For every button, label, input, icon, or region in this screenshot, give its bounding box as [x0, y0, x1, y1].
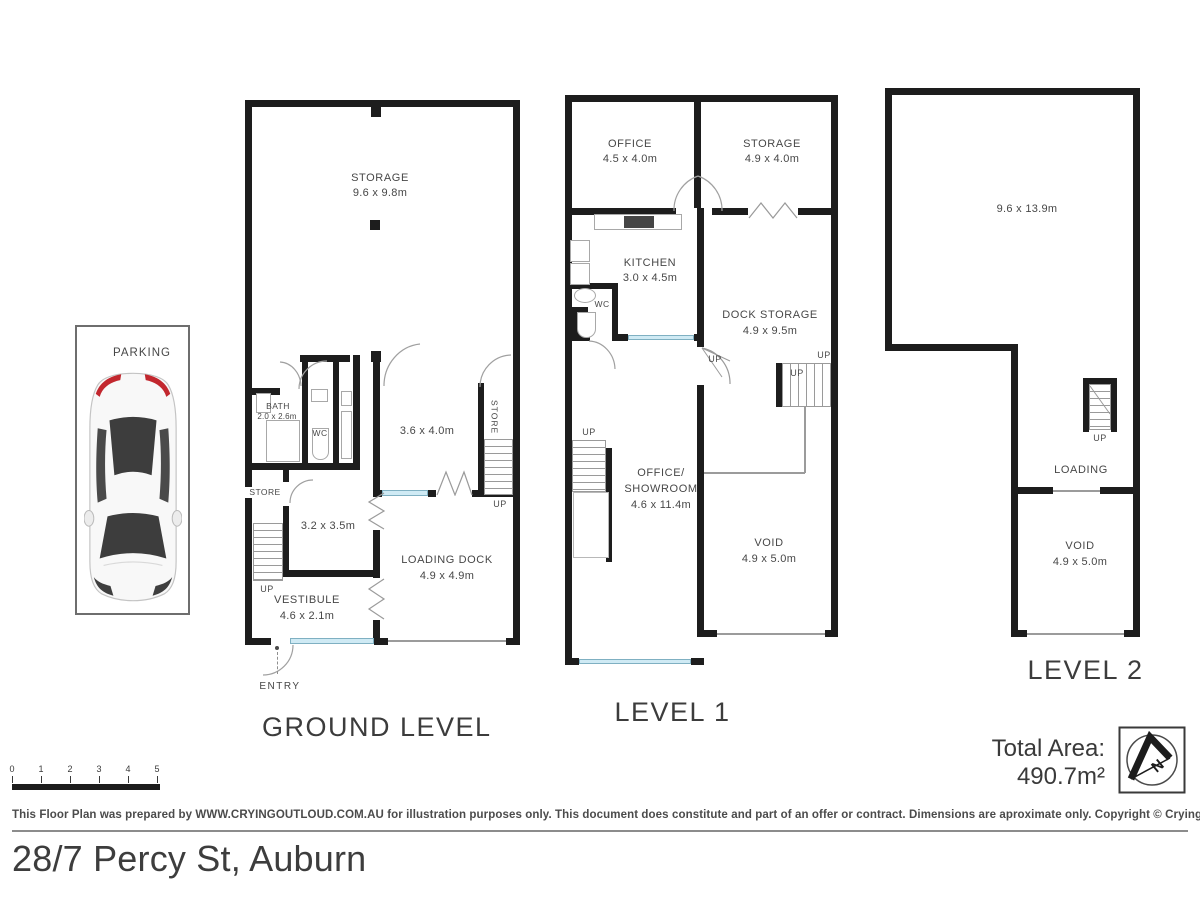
wall-segment: [353, 355, 360, 470]
entry-label: ENTRY: [254, 681, 306, 694]
wall-segment: [333, 355, 339, 470]
room-label: VOID: [1030, 540, 1130, 554]
shower-fixture: [266, 420, 300, 462]
room-label: VESTIBULE: [257, 594, 357, 608]
room-label: LOADING DOCK: [387, 554, 507, 568]
room-label: STORAGE: [320, 172, 440, 186]
room-label: WC: [588, 299, 616, 310]
up-label: UP: [576, 427, 602, 438]
room-label: BATH: [250, 401, 306, 412]
door-arc: [289, 479, 314, 504]
wall-segment: [831, 95, 838, 637]
wall-segment: [615, 334, 628, 341]
scale-tick-label: 0: [7, 764, 17, 774]
scale-tick: [128, 776, 129, 783]
wall-segment: [252, 463, 360, 470]
bifold-door: [436, 470, 473, 496]
wall-segment: [885, 88, 1140, 95]
entry-path-line: [277, 652, 278, 674]
room-label: OFFICE: [580, 138, 680, 152]
scale-bar: [12, 784, 160, 790]
wall-segment: [428, 490, 436, 497]
column: [371, 351, 381, 362]
fixture: [341, 391, 352, 406]
stairs: [253, 523, 283, 581]
up-label: UP: [812, 350, 836, 361]
scale-tick: [41, 776, 42, 783]
room-label: SHOWROOM: [611, 483, 711, 497]
wall-segment: [373, 362, 380, 490]
fixture: [570, 263, 590, 285]
total-area-text: Total Area: 490.7m²: [905, 735, 1105, 791]
room-dims: 4.9 x 5.0m: [1030, 556, 1130, 570]
entry-dot: [275, 646, 279, 650]
opening-line: [388, 640, 506, 642]
door-arc: [279, 361, 302, 387]
room-dims: 4.9 x 4.0m: [722, 153, 822, 167]
room-dims: 2.0 x 2.6m: [244, 412, 310, 422]
door-arc: [383, 343, 421, 387]
bifold-door: [748, 201, 798, 220]
door-arc: [588, 340, 616, 370]
door-arc: [298, 360, 328, 390]
wall-segment: [885, 88, 892, 351]
stairs: [484, 439, 513, 495]
room-label: KITCHEN: [600, 257, 700, 271]
wall-segment: [694, 334, 704, 341]
opening-line: [1053, 490, 1100, 492]
wall-segment: [704, 630, 717, 637]
wall-segment: [1133, 88, 1140, 637]
fixture: [570, 240, 590, 262]
double-door-arc: [672, 174, 724, 212]
wall-segment: [825, 630, 838, 637]
room-dims: 4.9 x 9.5m: [705, 325, 835, 339]
scale-tick: [70, 776, 71, 783]
wall-segment: [885, 344, 1018, 351]
toilet-fixture: [577, 312, 596, 338]
level1-title: LEVEL 1: [600, 697, 745, 728]
void-edge-line: [804, 407, 806, 473]
scale-tick-label: 1: [36, 764, 46, 774]
winder-stair: [700, 347, 732, 385]
window: [579, 659, 691, 664]
room-dims: 9.6 x 13.9m: [967, 203, 1087, 217]
room-label: VOID: [719, 537, 819, 551]
window: [290, 638, 374, 644]
wall-segment: [1124, 630, 1140, 637]
scale-tick-label: 4: [123, 764, 133, 774]
wall-segment: [1111, 378, 1117, 432]
scale-tick: [12, 776, 13, 783]
wall-segment: [283, 506, 289, 577]
column: [371, 107, 381, 117]
room-dims: 9.6 x 9.8m: [320, 187, 440, 201]
stair-diagonal: [1089, 384, 1111, 430]
opening-line: [1027, 633, 1125, 635]
void-edge-line: [704, 472, 805, 474]
property-address: 28/7 Percy St, Auburn: [12, 838, 366, 880]
wall-segment: [245, 100, 252, 645]
room-dims: 4.6 x 2.1m: [257, 610, 357, 624]
wall-segment: [513, 100, 520, 645]
up-label: UP: [702, 354, 728, 365]
scale-tick-label: 2: [65, 764, 75, 774]
window: [382, 490, 428, 496]
disclaimer-text: This Floor Plan was prepared by WWW.CRYI…: [12, 809, 1188, 821]
room-label: STORE: [243, 487, 287, 498]
scale-tick: [157, 776, 158, 783]
room-label: STORE: [489, 392, 500, 442]
room-dims: 3.0 x 4.5m: [600, 272, 700, 286]
wall-segment: [565, 658, 579, 665]
room-dims: 4.9 x 4.9m: [387, 570, 507, 584]
bifold-door: [367, 578, 386, 620]
room-label: WC: [305, 428, 335, 439]
room-label: STORAGE: [722, 138, 822, 152]
wall-segment: [373, 620, 380, 638]
room-label: OFFICE/: [611, 467, 711, 481]
stairs: [572, 440, 606, 492]
wall-segment: [283, 570, 379, 577]
up-label: UP: [486, 499, 514, 510]
opening-line: [717, 633, 825, 635]
room-dims: 4.6 x 11.4m: [611, 499, 711, 513]
parking-label: PARKING: [92, 346, 192, 360]
wall-segment: [1011, 487, 1053, 494]
floorplan-canvas: PARKING: [0, 0, 1200, 900]
stove-fixture: [624, 216, 654, 228]
up-label: UP: [785, 368, 809, 379]
bifold-door: [367, 492, 386, 530]
wall-segment: [612, 283, 618, 341]
room-label: LOADING: [1031, 464, 1131, 478]
wall-segment: [798, 208, 838, 215]
fixture: [341, 411, 352, 459]
room-dims: 4.9 x 5.0m: [719, 553, 819, 567]
scale-tick-label: 5: [152, 764, 162, 774]
wall-segment: [245, 100, 520, 107]
wall-segment: [1100, 487, 1140, 494]
wall-segment: [1011, 630, 1027, 637]
door-arc: [479, 354, 512, 388]
wall-segment: [565, 95, 572, 665]
scale-tick: [99, 776, 100, 783]
scale-tick-label: 3: [94, 764, 104, 774]
wall-segment: [565, 95, 838, 102]
footer-divider: [12, 830, 1188, 832]
car-top-view: [84, 366, 182, 608]
level2-title: LEVEL 2: [1018, 655, 1153, 686]
sink-fixture: [311, 389, 328, 402]
stair-landing-outline: [573, 492, 609, 558]
up-label: UP: [1086, 433, 1114, 444]
wall-segment: [691, 658, 704, 665]
room-dims: 3.6 x 4.0m: [387, 425, 467, 439]
room-dims: 4.5 x 4.0m: [580, 153, 680, 167]
ground-level-title: GROUND LEVEL: [262, 712, 472, 743]
wall-segment: [374, 638, 388, 645]
column: [370, 220, 380, 230]
north-compass: N: [1118, 726, 1186, 794]
window: [628, 335, 694, 340]
room-dims: 3.2 x 3.5m: [288, 520, 368, 534]
room-label: DOCK STORAGE: [705, 309, 835, 323]
wall-segment: [506, 638, 520, 645]
